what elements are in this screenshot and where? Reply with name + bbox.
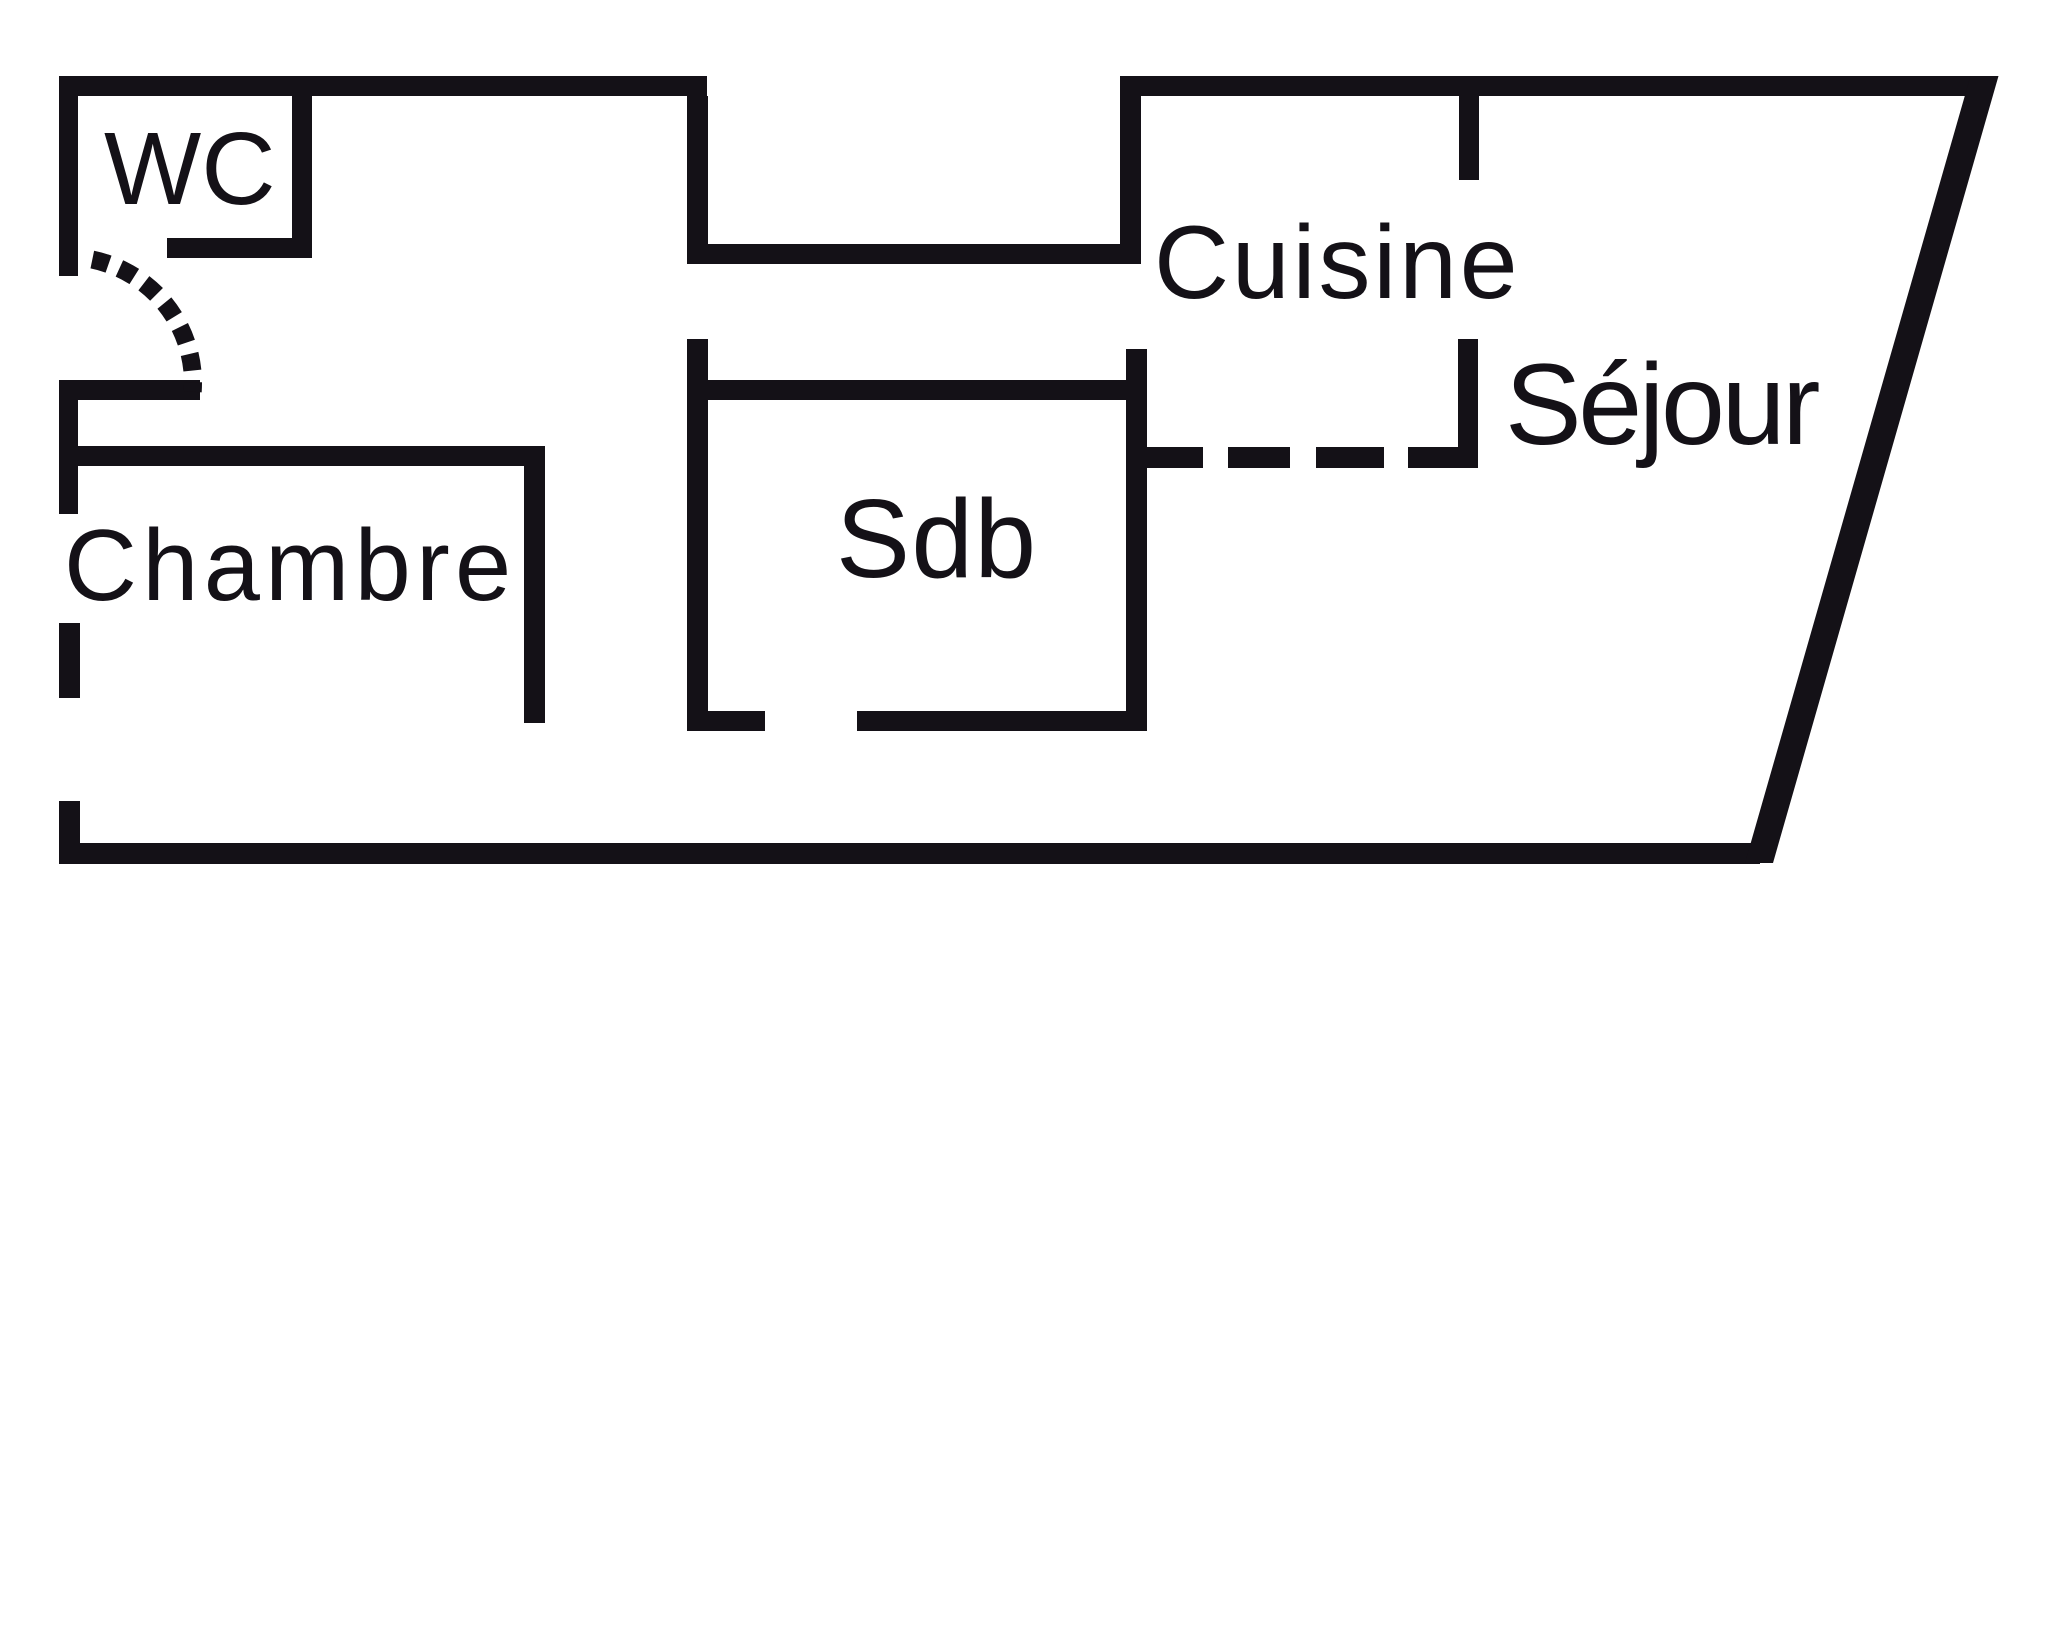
svg-text:Cuisine: Cuisine — [1154, 205, 1520, 321]
svg-text:Séjour: Séjour — [1505, 341, 1819, 469]
svg-text:WC: WC — [104, 111, 276, 226]
svg-text:Sdb: Sdb — [836, 477, 1037, 601]
svg-text:Chambre: Chambre — [64, 510, 517, 622]
